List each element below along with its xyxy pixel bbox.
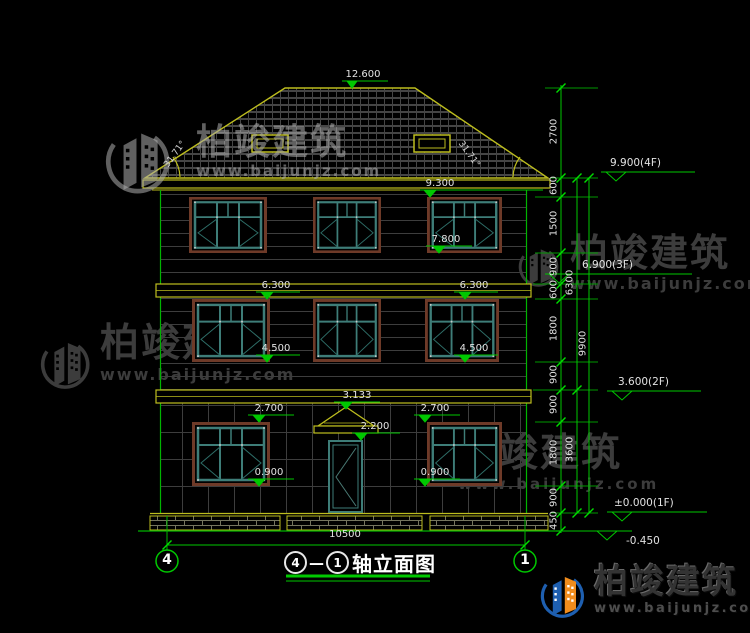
baijun-logo-icon: [540, 561, 588, 625]
dim-600b: 600: [549, 268, 560, 312]
window-2f-middle: [314, 300, 379, 360]
logo-brand: 柏竣建筑: [594, 565, 750, 601]
mark-3133: 3.133: [334, 390, 380, 401]
title-dash: —: [309, 554, 324, 572]
dim-900c: 900: [549, 383, 560, 427]
level-flag-ground: -0.450: [626, 536, 660, 548]
dim-1800b: 1800: [549, 431, 560, 475]
title-axis-from: 4: [284, 551, 307, 574]
mark-0900-left: 0.900: [246, 467, 292, 478]
mark-2200: 2.200: [352, 421, 398, 432]
title-axis-to: 1: [326, 551, 349, 574]
watermark-brand: 柏竣建筑: [196, 124, 381, 162]
title-text: 轴立面图: [352, 548, 436, 577]
mark-9300: 9.300: [420, 178, 460, 189]
level-flag-2f: 3.600(2F): [618, 377, 669, 389]
level-flag-3f: 6.900(3F): [582, 260, 633, 272]
peak-elevation-label: 12.600: [340, 69, 386, 80]
mark-4500-left: 4.500: [254, 343, 298, 354]
mark-7800: 7.800: [426, 234, 466, 245]
window-3f-middle: [314, 198, 379, 251]
dim-1800a: 1800: [549, 307, 560, 351]
plinth-right: [430, 516, 548, 530]
drawing-title: 4—1轴立面图: [284, 548, 436, 577]
level-flag-4f: 9.900(4F): [610, 158, 661, 170]
mark-4500-right: 4.500: [452, 343, 496, 354]
logo-site: www.baijunjz.com: [594, 601, 750, 616]
dim-3600: 3600: [565, 428, 576, 472]
mark-6300-left: 6.300: [254, 280, 298, 291]
level-flag-1f: ±0.000(1F): [614, 498, 674, 510]
baijun-corner-logo: 柏竣建筑 www.baijunjz.com: [540, 561, 750, 625]
dim-1500: 1500: [549, 202, 560, 246]
mark-2700-left: 2.700: [246, 403, 292, 414]
window-3f-left: [191, 198, 266, 251]
mark-0900-right: 0.900: [412, 467, 458, 478]
cad-elevation-screenshot: 柏竣建筑 www.baijunjz.com 柏竣建筑 www.baijunjz.…: [0, 0, 750, 633]
plinth-left: [150, 516, 280, 530]
mark-6300-right: 6.300: [452, 280, 496, 291]
level-flag-symbols: [545, 172, 707, 540]
dim-450: 450: [549, 499, 560, 543]
dim-9900: 9900: [578, 322, 589, 366]
mark-2700-right: 2.700: [412, 403, 458, 414]
entry-door: [329, 441, 362, 512]
watermark-site: www.baijunjz.com: [196, 162, 381, 180]
dim-2700: 2700: [549, 110, 560, 154]
overall-width-dim: 10500: [323, 529, 367, 540]
watermark-top: 柏竣建筑 www.baijunjz.com: [92, 110, 381, 204]
axis-bubble-1-number: 1: [518, 553, 532, 568]
dim-6300: 6300: [565, 261, 576, 305]
axis-bubble-4-number: 4: [160, 553, 174, 568]
plinth-center: [287, 516, 422, 530]
